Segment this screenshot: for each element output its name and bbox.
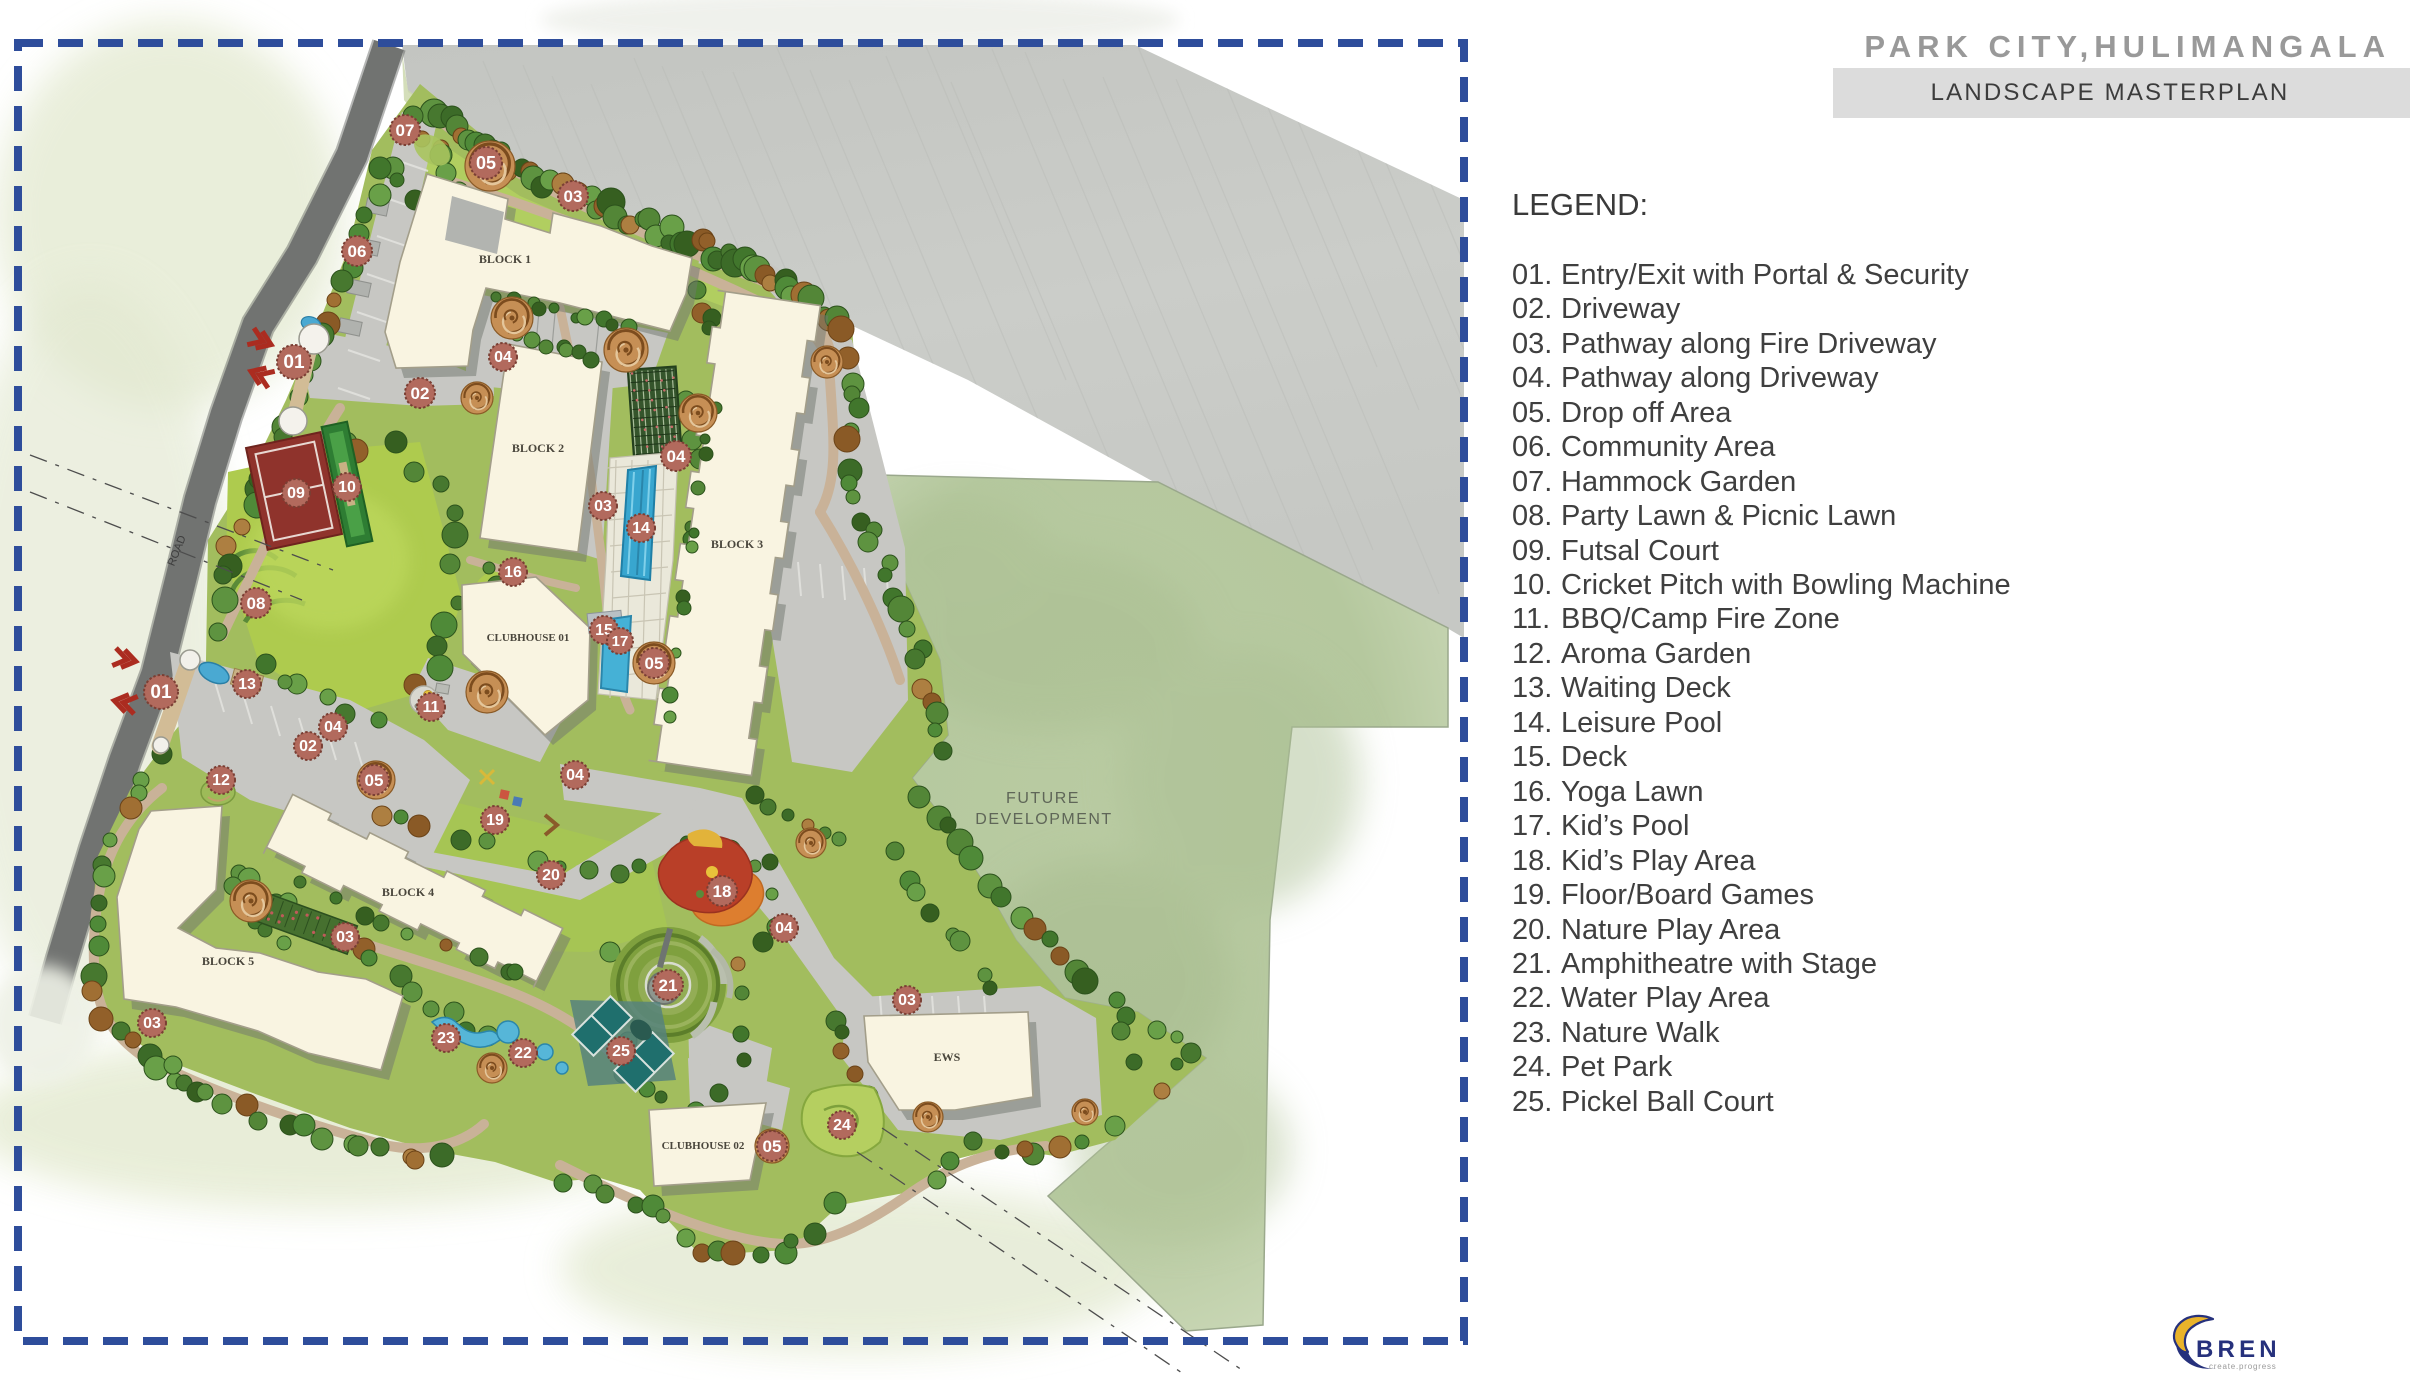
svg-text:25: 25 (612, 1043, 630, 1060)
svg-text:15.: 15. (1512, 741, 1552, 773)
svg-text:25.: 25. (1512, 1086, 1552, 1118)
svg-text:BLOCK 3: BLOCK 3 (711, 537, 763, 551)
svg-text:Hammock Garden: Hammock Garden (1561, 466, 1796, 498)
svg-text:Leisure Pool: Leisure Pool (1561, 707, 1722, 739)
svg-text:24: 24 (833, 1117, 851, 1134)
svg-text:CLUBHOUSE 02: CLUBHOUSE 02 (662, 1140, 745, 1152)
svg-text:04: 04 (494, 349, 512, 366)
svg-text:01: 01 (283, 352, 305, 373)
svg-text:23: 23 (437, 1030, 455, 1047)
svg-text:02: 02 (299, 738, 317, 755)
svg-text:04: 04 (775, 920, 793, 937)
svg-text:16: 16 (504, 564, 522, 581)
svg-text:BLOCK 1: BLOCK 1 (479, 252, 531, 266)
svg-text:Driveway: Driveway (1561, 293, 1681, 325)
svg-text:12.: 12. (1512, 638, 1552, 670)
svg-text:Water Play Area: Water Play Area (1561, 982, 1770, 1014)
svg-text:04: 04 (324, 719, 342, 736)
svg-text:10.: 10. (1512, 569, 1552, 601)
svg-text:05: 05 (763, 1137, 782, 1156)
svg-text:Pickel Ball Court: Pickel Ball Court (1561, 1086, 1774, 1118)
svg-text:create.progress: create.progress (2209, 1362, 2277, 1371)
svg-text:04: 04 (566, 767, 584, 784)
svg-text:19.: 19. (1512, 879, 1552, 911)
svg-text:12: 12 (212, 772, 230, 789)
svg-text:BLOCK 2: BLOCK 2 (512, 441, 564, 455)
svg-text:Pet Park: Pet Park (1561, 1051, 1673, 1083)
svg-text:Drop off Area: Drop off Area (1561, 397, 1732, 429)
svg-text:DEVELOPMENT: DEVELOPMENT (975, 811, 1112, 828)
svg-text:09: 09 (287, 485, 305, 502)
svg-text:02: 02 (411, 384, 430, 403)
svg-text:22: 22 (514, 1045, 532, 1062)
svg-text:Pathway along Driveway: Pathway along Driveway (1561, 362, 1879, 394)
svg-text:06: 06 (348, 242, 367, 261)
svg-text:Pathway along Fire Driveway: Pathway along Fire Driveway (1561, 328, 1937, 360)
svg-text:10: 10 (338, 479, 356, 496)
svg-text:03: 03 (564, 187, 583, 206)
svg-text:09.: 09. (1512, 535, 1552, 567)
svg-text:Floor/Board Games: Floor/Board Games (1561, 879, 1814, 911)
svg-text:02.: 02. (1512, 293, 1552, 325)
svg-text:03: 03 (336, 929, 354, 946)
svg-text:17.: 17. (1512, 810, 1552, 842)
svg-text:CLUBHOUSE 01: CLUBHOUSE 01 (487, 632, 570, 644)
svg-text:20.: 20. (1512, 914, 1552, 946)
svg-text:18: 18 (713, 882, 732, 901)
svg-text:Kid’s Play Area: Kid’s Play Area (1561, 845, 1756, 877)
svg-text:03: 03 (143, 1015, 161, 1032)
svg-text:04.: 04. (1512, 362, 1552, 394)
svg-text:03.: 03. (1512, 328, 1552, 360)
svg-text:BBQ/Camp Fire Zone: BBQ/Camp Fire Zone (1561, 603, 1840, 635)
svg-text:23.: 23. (1512, 1017, 1552, 1049)
svg-text:Party Lawn & Picnic Lawn: Party Lawn & Picnic Lawn (1561, 500, 1896, 532)
svg-text:07.: 07. (1512, 466, 1552, 498)
svg-text:05.: 05. (1512, 397, 1552, 429)
svg-text:16.: 16. (1512, 776, 1552, 808)
svg-text:01.: 01. (1512, 259, 1552, 291)
svg-text:05: 05 (476, 153, 496, 173)
svg-text:Community Area: Community Area (1561, 431, 1776, 463)
svg-text:Kid’s Pool: Kid’s Pool (1561, 810, 1689, 842)
svg-text:20: 20 (542, 867, 560, 884)
svg-text:21: 21 (659, 976, 678, 995)
svg-text:BREN: BREN (2196, 1336, 2281, 1363)
svg-text:19: 19 (486, 812, 504, 829)
svg-text:BLOCK 4: BLOCK 4 (382, 885, 434, 899)
svg-text:13: 13 (238, 676, 256, 693)
svg-text:24.: 24. (1512, 1051, 1552, 1083)
svg-text:08.: 08. (1512, 500, 1552, 532)
svg-text:Yoga Lawn: Yoga Lawn (1561, 776, 1703, 808)
svg-text:LEGEND:: LEGEND: (1512, 187, 1648, 222)
svg-text:Aroma Garden: Aroma Garden (1561, 638, 1751, 670)
svg-text:14: 14 (632, 520, 650, 537)
svg-text:03: 03 (594, 498, 612, 515)
svg-text:17: 17 (612, 633, 629, 650)
svg-text:Nature Walk: Nature Walk (1561, 1017, 1720, 1049)
svg-text:Amphitheatre with Stage: Amphitheatre with Stage (1561, 948, 1877, 980)
svg-text:01: 01 (150, 682, 172, 703)
svg-text:14.: 14. (1512, 707, 1552, 739)
svg-text:04: 04 (667, 447, 686, 466)
svg-text:Futsal Court: Futsal Court (1561, 535, 1719, 567)
svg-text:Nature Play Area: Nature Play Area (1561, 914, 1781, 946)
svg-text:11: 11 (423, 699, 440, 716)
svg-text:05: 05 (645, 654, 664, 673)
svg-text:21.: 21. (1512, 948, 1552, 980)
svg-text:06.: 06. (1512, 431, 1552, 463)
svg-text:05: 05 (365, 771, 384, 790)
svg-text:EWS: EWS (934, 1050, 961, 1064)
svg-text:LANDSCAPE MASTERPLAN: LANDSCAPE MASTERPLAN (1931, 79, 2290, 106)
svg-text:13.: 13. (1512, 672, 1552, 704)
svg-text:Entry/Exit with Portal & Secur: Entry/Exit with Portal & Security (1561, 259, 1969, 291)
svg-text:22.: 22. (1512, 982, 1552, 1014)
svg-text:Waiting Deck: Waiting Deck (1561, 672, 1731, 704)
svg-text:11.: 11. (1512, 603, 1550, 635)
svg-text:BLOCK 5: BLOCK 5 (202, 954, 254, 968)
svg-text:07: 07 (396, 121, 415, 140)
svg-text:FUTURE: FUTURE (1006, 790, 1080, 807)
svg-text:18.: 18. (1512, 845, 1552, 877)
svg-text:08: 08 (247, 594, 266, 613)
svg-text:PARK CITY,HULIMANGALA: PARK CITY,HULIMANGALA (1864, 29, 2391, 64)
svg-text:Cricket Pitch with Bowling Mac: Cricket Pitch with Bowling Machine (1561, 569, 2011, 601)
svg-text:03: 03 (898, 992, 916, 1009)
svg-text:Deck: Deck (1561, 741, 1628, 773)
